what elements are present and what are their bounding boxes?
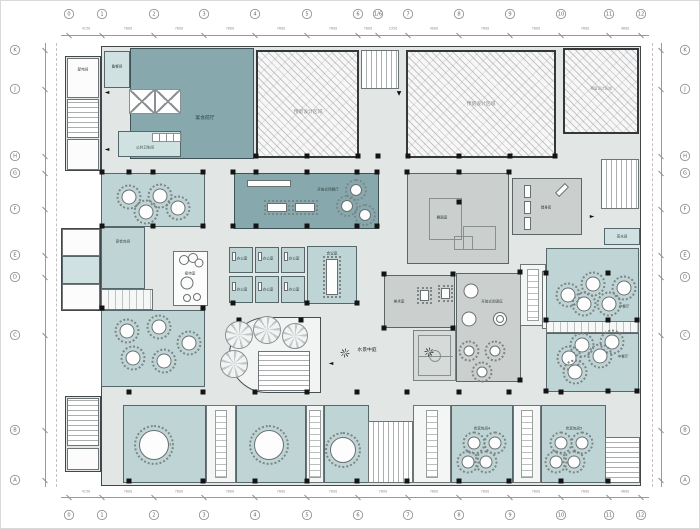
room-label: 美术室 (393, 300, 404, 304)
structural-column (254, 170, 259, 175)
room-label: 办公室 (263, 288, 274, 292)
room-label: 接待室 (184, 272, 195, 276)
room-left-mid-3 (62, 284, 100, 310)
structural-column (405, 170, 410, 175)
room-label: 会议室 (327, 252, 338, 256)
structural-column (508, 154, 513, 159)
structural-column (305, 170, 310, 175)
service-core-4 (513, 405, 541, 483)
structural-column (100, 170, 105, 175)
dining-table-round (126, 351, 141, 366)
room-games-court (413, 330, 456, 381)
structural-column (544, 389, 549, 394)
dining-table-round (586, 277, 601, 292)
room-reserved-1: 预留设计区域 (256, 50, 359, 158)
dining-table-round (480, 456, 493, 469)
landscape-fan-feature (220, 350, 248, 378)
stair-bottom-center (368, 421, 413, 483)
structural-column (559, 479, 564, 484)
structural-column (451, 326, 456, 331)
structural-column (305, 154, 310, 159)
structural-column (355, 479, 360, 484)
structural-column (457, 479, 462, 484)
structural-column (127, 390, 132, 395)
room-left-service (67, 139, 99, 170)
room-tea: 茶水间 (604, 228, 640, 245)
dining-table-round (254, 430, 284, 460)
dining-table-round (593, 349, 608, 364)
service-core-1 (206, 405, 236, 483)
structural-column (305, 479, 310, 484)
structural-column (544, 318, 549, 323)
room-label: 宴会包间 (116, 241, 130, 245)
structural-column (254, 224, 259, 229)
room-label: 办公室 (289, 288, 300, 292)
room-label: 开放式西餐厅 (317, 188, 339, 192)
room-left-mid-2 (62, 256, 100, 284)
room-label: 舞蹈室 (437, 216, 448, 220)
structural-column (375, 224, 380, 229)
entrance-arrow-icon: ◄ (329, 361, 334, 367)
structural-column (635, 318, 640, 323)
dining-table-round (152, 320, 167, 335)
atrium-label: 水景中庭 (357, 348, 376, 353)
furniture-circle (195, 259, 204, 268)
room-gym: 健身房 (512, 178, 582, 235)
furniture-circle (464, 284, 479, 299)
structural-column (201, 479, 206, 484)
structural-column (151, 170, 156, 175)
structural-column (127, 170, 132, 175)
dining-table-round (139, 205, 154, 220)
dining-table-round (359, 209, 371, 221)
stair-top-center (361, 50, 399, 89)
furniture-rect (284, 282, 288, 291)
structural-column (451, 272, 456, 277)
dining-table-round (122, 190, 137, 205)
structural-column (606, 318, 611, 323)
elevator-car (129, 89, 155, 114)
structural-column (201, 390, 206, 395)
dining-table-round (153, 189, 168, 204)
furniture-rect (284, 252, 288, 261)
structural-column (507, 390, 512, 395)
structural-column (518, 270, 523, 275)
structural-column (253, 390, 258, 395)
furniture-rect (267, 203, 287, 212)
floor-plan: 宴会前厅 备餐间 公共卫生间 预留设计区域 预留设计区域 预留设计区域 开放式西… (1, 1, 700, 529)
structural-column (507, 170, 512, 175)
entrance-arrow-icon: ► (590, 214, 595, 220)
dining-table-round (462, 456, 475, 469)
entrance-arrow-icon: ◄ (105, 147, 110, 153)
structural-column (253, 479, 258, 484)
structural-column (544, 271, 549, 276)
structural-column (405, 479, 410, 484)
room-label: 办公室 (237, 257, 248, 261)
dining-table-round (182, 336, 197, 351)
stair-left-top (67, 99, 99, 138)
dance-floor-mat (454, 236, 473, 250)
dining-table-round (139, 430, 169, 460)
room-label: 办公室 (237, 288, 248, 292)
furniture-circle (193, 293, 201, 301)
room-left-mid-1 (62, 229, 100, 256)
room-label: 办公室 (263, 257, 274, 261)
stair-top-right (601, 159, 639, 209)
elevator-bank (129, 89, 181, 114)
dining-table-round (568, 365, 583, 380)
dining-table-round (341, 200, 353, 212)
furniture-rect (441, 288, 450, 299)
furniture-rect (524, 201, 531, 214)
service-core-3 (413, 405, 451, 483)
dining-table-round (477, 367, 488, 378)
dining-table-round (568, 456, 581, 469)
structural-column (457, 154, 462, 159)
furniture-rect (295, 203, 315, 212)
structural-column (356, 154, 361, 159)
room-label: 公共卫生间 (136, 146, 154, 150)
furniture-circle (181, 277, 194, 290)
dining-table-round (576, 437, 589, 450)
structural-column (375, 170, 380, 175)
dining-table-round (617, 281, 632, 296)
room-banquet-left: 宴会包间 (101, 227, 145, 289)
room-label: 健身房 (541, 206, 552, 210)
room-label: 贵宾包间4 (474, 427, 491, 431)
room-public-toilet: 公共卫生间 (118, 131, 181, 157)
structural-column (201, 224, 206, 229)
plant-icon (341, 349, 350, 358)
structural-column (355, 170, 360, 175)
structural-column (635, 389, 640, 394)
dining-table-round (602, 297, 617, 312)
furniture-rect (232, 252, 236, 261)
structural-column (606, 479, 611, 484)
structural-column (231, 224, 236, 229)
structural-column (231, 301, 236, 306)
dining-table-round (555, 437, 568, 450)
furniture-circle (496, 315, 504, 323)
furniture-circle (183, 294, 191, 302)
room-left-bottom (67, 448, 99, 470)
room-reserved-3: 预留设计区域 (563, 48, 639, 134)
dining-table-round (550, 456, 563, 469)
dining-table-round (468, 437, 481, 450)
entrance-arrow-icon: ▼ (397, 91, 402, 97)
structural-column (127, 479, 132, 484)
structural-column (299, 318, 304, 323)
entrance-arrow-icon: ◄ (105, 90, 110, 96)
structural-column (231, 170, 236, 175)
structural-column (355, 390, 360, 395)
structural-column (151, 224, 156, 229)
room-electrical: 配电间 (67, 58, 99, 98)
structural-column (559, 390, 564, 395)
service-core-2 (306, 405, 324, 483)
structural-column (457, 390, 462, 395)
floor-plan-sheet: 041501780027800378004780057800678001/623… (0, 0, 700, 529)
landscape-fan-feature (253, 316, 281, 344)
structural-column (201, 170, 206, 175)
curved-stair (258, 351, 310, 391)
landscape-fan-feature (282, 323, 308, 349)
stair-bottom-right (605, 437, 640, 483)
dining-table-round (464, 346, 475, 357)
structural-column (457, 200, 462, 205)
room-label: 配电间 (78, 69, 89, 73)
structural-column (405, 390, 410, 395)
structural-column (305, 390, 310, 395)
structural-column (305, 301, 310, 306)
structural-column (518, 378, 523, 383)
room-reserved-2: 预留设计区域 (406, 50, 556, 158)
elevator-car (155, 89, 181, 114)
furniture-rect (258, 282, 262, 291)
furniture-rect (524, 217, 531, 230)
structural-column (100, 224, 105, 229)
dining-table-round (350, 184, 362, 196)
room-label: 预留设计区域 (293, 110, 322, 115)
furniture-circle (462, 312, 477, 327)
structural-column (305, 224, 310, 229)
structural-column (201, 306, 206, 311)
room-label: 贵宾包间5 (565, 427, 582, 431)
structural-column (382, 272, 387, 277)
dining-table-round (561, 288, 576, 303)
structural-column (382, 326, 387, 331)
room-prep: 备餐间 (104, 51, 130, 88)
stair-left-bottom (67, 398, 99, 446)
room-label: 备餐间 (112, 65, 123, 69)
structural-column (457, 170, 462, 175)
structural-column (100, 306, 105, 311)
furniture-rect (258, 252, 262, 261)
toilet-stalls (152, 133, 182, 142)
structural-column (254, 154, 259, 159)
service-counter (546, 321, 639, 333)
dining-table-round (330, 437, 356, 463)
room-label: 茶水间 (617, 235, 628, 239)
structural-column (606, 271, 611, 276)
furniture-rect (420, 290, 429, 301)
room-dance: 舞蹈室 (407, 173, 509, 264)
room-label: 预留设计区域 (590, 88, 612, 92)
structural-column (376, 154, 381, 159)
room-label: 开放式阅读区 (481, 300, 503, 304)
structural-column (406, 154, 411, 159)
dining-table-round (157, 354, 172, 369)
structural-column (355, 301, 360, 306)
room-label: 宴会前厅 (196, 115, 215, 120)
room-label: 办公室 (289, 257, 300, 261)
structural-column (606, 389, 611, 394)
furniture-rect (232, 282, 236, 291)
dining-table-round (489, 437, 502, 450)
plant-icon (425, 348, 434, 357)
dining-table-round (171, 201, 186, 216)
furniture-rect (326, 259, 338, 295)
furniture-rect (247, 180, 291, 187)
dining-table-round (120, 324, 135, 339)
structural-column (507, 479, 512, 484)
landscape-fan-feature (225, 321, 253, 349)
room-kitchenette (101, 289, 153, 310)
room-label: 预留设计区域 (467, 102, 496, 107)
structural-column (553, 154, 558, 159)
room-label: 中餐厅 (618, 355, 629, 359)
furniture-rect (524, 185, 531, 198)
dining-table-round (490, 346, 501, 357)
